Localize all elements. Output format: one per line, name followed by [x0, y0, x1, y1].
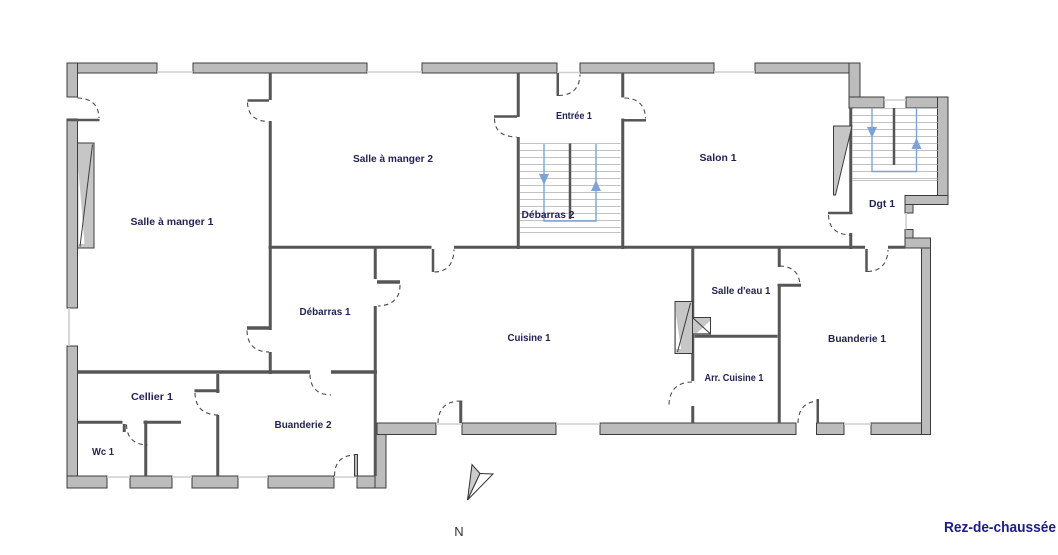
svg-text:Débarras 1: Débarras 1: [300, 306, 351, 318]
svg-text:Cuisine 1: Cuisine 1: [508, 332, 551, 344]
svg-text:Salon 1: Salon 1: [700, 152, 737, 164]
svg-text:Cellier 1: Cellier 1: [131, 391, 173, 403]
svg-text:Rez-de-chaussée: Rez-de-chaussée: [944, 519, 1056, 536]
svg-text:Salle à manger 2: Salle à manger 2: [353, 153, 433, 165]
svg-text:Entrée 1: Entrée 1: [556, 110, 592, 122]
svg-text:N: N: [454, 524, 463, 539]
svg-text:Buanderie 1: Buanderie 1: [828, 333, 886, 345]
svg-text:Salle d'eau 1: Salle d'eau 1: [712, 285, 771, 297]
svg-text:Wc 1: Wc 1: [92, 446, 114, 458]
svg-text:Arr. Cuisine 1: Arr. Cuisine 1: [705, 372, 764, 384]
svg-text:Salle à manger 1: Salle à manger 1: [131, 216, 214, 228]
svg-text:Dgt 1: Dgt 1: [869, 198, 895, 210]
svg-text:Débarras 2: Débarras 2: [522, 209, 575, 221]
svg-text:Buanderie 2: Buanderie 2: [275, 419, 332, 431]
